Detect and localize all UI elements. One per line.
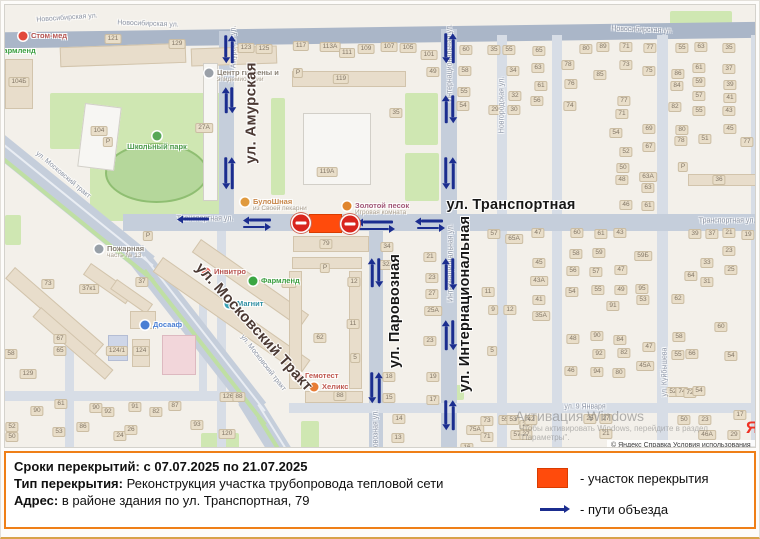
legend-detour-label: - пути объезда xyxy=(580,502,668,517)
house-number: 13 xyxy=(392,434,403,442)
house-number: 46 xyxy=(620,201,631,209)
detour-arrow xyxy=(445,33,448,57)
street xyxy=(552,35,562,448)
house-number: 123 xyxy=(239,44,254,52)
house-number: 47 xyxy=(532,229,543,237)
detour-arrow xyxy=(231,87,234,107)
house-number: 34 xyxy=(381,243,392,251)
poi-icon xyxy=(153,132,162,141)
poi-sublabel: Игровая комната xyxy=(355,209,406,216)
house-number: 67 xyxy=(643,143,654,151)
house-number: 82 xyxy=(150,408,161,416)
house-number: 84 xyxy=(614,336,625,344)
street-label: Новгородская ул. xyxy=(499,77,506,133)
house-number: Р xyxy=(104,138,112,146)
detour-arrow xyxy=(452,39,455,63)
poi-icon xyxy=(95,245,104,254)
detour-arrow xyxy=(225,35,228,57)
house-number: 56 xyxy=(567,267,578,275)
green-area xyxy=(301,421,319,448)
house-number: 86 xyxy=(672,70,683,78)
detour-arrow xyxy=(371,372,374,397)
street-label: ул. Транспортная xyxy=(446,197,575,213)
poi-label: Фармленд xyxy=(4,46,36,55)
house-number: 61 xyxy=(693,64,704,72)
poi-sublabel: из Своей пекарни xyxy=(253,205,307,212)
green-area xyxy=(5,215,21,245)
house-number: 55 xyxy=(676,44,687,52)
house-number: 23 xyxy=(723,247,734,255)
house-number: Р xyxy=(294,69,302,77)
house-number: 57 xyxy=(488,230,499,238)
house-number: 24 xyxy=(114,432,125,440)
house-number: 43 xyxy=(614,229,625,237)
detour-arrow xyxy=(445,400,448,424)
detour-arrow xyxy=(445,101,448,123)
house-number: 111 xyxy=(340,49,354,57)
house-number: 43 xyxy=(723,107,734,115)
map-canvas[interactable]: 121129104Б123125117113А11110910710510149… xyxy=(4,4,756,448)
house-number: 59Б xyxy=(635,252,651,260)
house-number: 63 xyxy=(532,64,543,72)
detour-arrow xyxy=(452,163,455,189)
house-number: Р xyxy=(321,264,329,272)
house-number: 37 xyxy=(136,278,147,286)
house-number: 124 xyxy=(134,347,149,355)
house-number: 120 xyxy=(220,430,235,438)
house-number: 11 xyxy=(483,288,494,296)
house-number: 48 xyxy=(616,176,627,184)
windows-activation-watermark: Активация Windows xyxy=(515,408,644,424)
green-area xyxy=(105,143,208,203)
house-number: 45 xyxy=(533,259,544,267)
detour-arrow xyxy=(421,220,443,223)
map-attribution[interactable]: © Яндекс Справка Условия использования xyxy=(607,440,756,448)
house-number: 39 xyxy=(724,81,735,89)
street-label: Новосибирская ул. xyxy=(117,19,179,28)
house-number: 41 xyxy=(724,94,735,102)
house-number: 59 xyxy=(593,249,604,257)
detour-arrow xyxy=(452,406,455,430)
house-number: 19 xyxy=(742,231,753,239)
house-number: 48 xyxy=(567,335,578,343)
house-number: 21 xyxy=(424,253,435,261)
house-number: 12 xyxy=(348,278,359,286)
house-number: 77 xyxy=(618,97,629,105)
street-label: Новосибирская ул. xyxy=(36,12,98,23)
house-number: 55 xyxy=(458,88,469,96)
house-number: 67 xyxy=(54,335,65,343)
house-number: Р xyxy=(679,163,687,171)
house-number: 52 xyxy=(620,148,631,156)
house-number: 104Б xyxy=(9,78,28,86)
house-number: 35А xyxy=(533,312,549,320)
house-number: 55 xyxy=(503,46,514,54)
detour-arrow xyxy=(183,218,209,221)
house-number: 45 xyxy=(724,125,735,133)
house-number: 35 xyxy=(723,44,734,52)
house-number: 54 xyxy=(610,129,621,137)
house-number: 105 xyxy=(401,44,416,52)
house-number: 62 xyxy=(672,295,683,303)
poi-label: Стом-мед xyxy=(31,31,67,40)
house-number: 21 xyxy=(723,229,734,237)
street xyxy=(751,35,756,448)
house-number: 58 xyxy=(459,67,470,75)
house-number: 71 xyxy=(481,433,492,441)
house-number: 95 xyxy=(636,285,647,293)
legend-detour-arrow-icon xyxy=(540,508,564,511)
house-number: 49 xyxy=(615,286,626,294)
house-number: 60 xyxy=(460,46,471,54)
house-number: 43А xyxy=(531,277,547,285)
house-number: 107 xyxy=(382,43,397,51)
house-number: 71 xyxy=(620,43,631,51)
house-number: 78 xyxy=(562,61,573,69)
house-number: 23 xyxy=(426,274,437,282)
closure-dates-label: Сроки перекрытий: xyxy=(14,459,140,474)
house-number: 101 xyxy=(422,51,437,59)
house-number: 58 xyxy=(673,333,684,341)
house-number: 18 xyxy=(383,373,394,381)
house-number: 90 xyxy=(591,332,602,340)
building xyxy=(162,335,196,375)
detour-arrow xyxy=(452,258,455,284)
house-number: 46 xyxy=(565,367,576,375)
house-number: 121 xyxy=(106,35,121,43)
house-number: 82 xyxy=(669,103,680,111)
detour-arrow xyxy=(445,157,448,183)
house-number: 78 xyxy=(675,137,686,145)
house-number: 85 xyxy=(594,71,605,79)
street-label: Паровозная ул. xyxy=(373,410,380,448)
house-number: 27А xyxy=(196,124,212,132)
detour-arrow xyxy=(231,41,234,63)
house-number: 54 xyxy=(693,387,704,395)
house-number: 54 xyxy=(725,352,736,360)
house-number: 60 xyxy=(715,323,726,331)
house-number: 74 xyxy=(564,102,575,110)
house-number: 60 xyxy=(571,229,582,237)
closure-type-line: Тип перекрытия: Реконструкция участка тр… xyxy=(14,475,443,492)
house-number: 54 xyxy=(566,288,577,296)
house-number: 57 xyxy=(693,92,704,100)
house-number: 93 xyxy=(191,421,202,429)
house-number: 91 xyxy=(129,403,140,411)
house-number: 55 xyxy=(592,286,603,294)
house-number: 65А xyxy=(506,235,522,243)
legend-closure-swatch xyxy=(537,468,568,488)
house-number: 17 xyxy=(427,396,438,404)
poi-label: Фармленд xyxy=(261,276,300,285)
street-label: ул. Куйбышева xyxy=(662,348,669,397)
house-number: Р xyxy=(144,232,152,240)
house-number: 51 xyxy=(699,135,710,143)
house-number: 17 xyxy=(734,411,745,419)
house-number: 53 xyxy=(53,428,64,436)
house-number: 63 xyxy=(695,43,706,51)
house-number: 58 xyxy=(5,350,16,358)
info-panel: Сроки перекрытий: с 07.07.2025 по 21.07.… xyxy=(4,451,756,529)
house-number: 50 xyxy=(617,164,628,172)
detour-arrow xyxy=(225,93,228,113)
street-label: ул. Амурская xyxy=(243,62,260,164)
house-number: 79 xyxy=(320,240,331,248)
house-number: 117 xyxy=(294,42,308,50)
house-number: 75 xyxy=(643,67,654,75)
house-number: 125 xyxy=(257,45,272,53)
closure-address-line: Адрес: в районе здания по ул. Транспортн… xyxy=(14,492,443,509)
poi-label: Хеликс xyxy=(322,382,348,391)
building xyxy=(203,63,218,201)
house-number: 66 xyxy=(686,350,697,358)
detour-arrow xyxy=(417,227,439,230)
poi-label: Досааф xyxy=(153,320,182,329)
house-number: 73 xyxy=(481,417,492,425)
house-number: 56 xyxy=(531,97,542,105)
house-number: 49 xyxy=(427,68,438,76)
house-number: 65 xyxy=(54,347,65,355)
green-area xyxy=(271,98,285,195)
house-number: 33 xyxy=(701,259,712,267)
house-number: 39 xyxy=(689,230,700,238)
detour-arrow xyxy=(231,163,234,189)
street-label: ул. Интернациональная xyxy=(457,216,473,392)
closure-address-label: Адрес: xyxy=(14,493,58,508)
house-number: 77 xyxy=(741,138,752,146)
detour-arrow xyxy=(363,221,393,224)
no-entry-sign xyxy=(293,215,310,232)
house-number: 119 xyxy=(334,75,348,83)
green-area xyxy=(405,93,438,145)
house-number: 90 xyxy=(90,404,101,412)
building xyxy=(60,43,187,67)
detour-arrow xyxy=(445,264,448,290)
house-number: 26 xyxy=(125,426,136,434)
closure-type-value: Реконструкция участка трубопровода тепло… xyxy=(127,476,444,491)
house-number: 52 xyxy=(6,423,17,431)
house-number: 59 xyxy=(693,78,704,86)
house-number: 80 xyxy=(676,126,687,134)
house-number: 32 xyxy=(509,92,520,100)
green-area xyxy=(50,93,222,149)
house-number: 104 xyxy=(92,127,107,135)
detour-arrow xyxy=(378,378,381,403)
detour-arrow xyxy=(359,228,389,231)
house-number: 119А xyxy=(318,168,337,176)
house-number: 76 xyxy=(565,80,576,88)
house-number: 113А xyxy=(321,43,340,51)
house-number: 36 xyxy=(713,176,724,184)
no-entry-sign xyxy=(342,216,359,233)
detour-arrow xyxy=(243,226,265,229)
building xyxy=(303,113,371,185)
house-number: 87 xyxy=(169,402,180,410)
yandex-logo: Я xyxy=(746,418,756,438)
house-number: 94 xyxy=(591,368,602,376)
house-number: 58 xyxy=(570,250,581,258)
house-number: 50 xyxy=(678,416,689,424)
house-number: 77 xyxy=(644,44,655,52)
poi-icon xyxy=(249,277,258,286)
house-number: 54 xyxy=(457,102,468,110)
legend-closure-label: - участок перекрытия xyxy=(580,471,709,486)
house-number: 16 xyxy=(461,444,472,448)
house-number: 23 xyxy=(699,416,710,424)
street-label: ул. Паровозная xyxy=(387,254,403,368)
house-number: 92 xyxy=(102,408,113,416)
house-number: 41 xyxy=(533,296,544,304)
street-label: Транспортная ул. xyxy=(699,218,756,225)
house-number: 15 xyxy=(383,394,394,402)
house-number: 92 xyxy=(593,350,604,358)
house-number: 61 xyxy=(535,82,546,90)
house-number: 73 xyxy=(620,61,631,69)
house-number: 19 xyxy=(427,373,438,381)
building xyxy=(292,71,406,87)
house-number: 25А xyxy=(425,307,441,315)
closure-dates-line: Сроки перекрытий: с 07.07.2025 по 21.07.… xyxy=(14,458,443,475)
house-number: 129 xyxy=(170,40,185,48)
house-number: 86 xyxy=(77,423,88,431)
house-number: 88 xyxy=(233,393,244,401)
house-number: 37 xyxy=(723,65,734,73)
house-number: 35 xyxy=(390,109,401,117)
poi-icon xyxy=(343,202,352,211)
house-number: 65 xyxy=(533,47,544,55)
detour-arrow xyxy=(452,320,455,344)
closure-type-label: Тип перекрытия: xyxy=(14,476,123,491)
detour-arrow xyxy=(249,219,271,222)
house-number: 82 xyxy=(618,349,629,357)
house-number: 64 xyxy=(685,272,696,280)
house-number: 14 xyxy=(393,415,404,423)
house-number: 37 xyxy=(706,230,717,238)
house-number: 129 xyxy=(21,370,36,378)
house-number: 109 xyxy=(359,45,374,53)
building xyxy=(77,103,122,171)
house-number: 63А xyxy=(640,173,656,181)
detour-arrow xyxy=(445,326,448,350)
house-number: 61 xyxy=(642,202,653,210)
house-number: 50 xyxy=(6,433,17,441)
closure-details: Сроки перекрытий: с 07.07.2025 по 21.07.… xyxy=(14,458,443,509)
house-number: 9 xyxy=(489,306,497,314)
house-number: 91 xyxy=(607,302,618,310)
house-number: 23 xyxy=(424,337,435,345)
house-number: 47 xyxy=(615,266,626,274)
closure-dates-value: с 07.07.2025 по 21.07.2025 xyxy=(144,459,308,474)
poi-icon xyxy=(205,69,214,78)
detour-arrow xyxy=(371,264,374,287)
detour-arrow xyxy=(378,258,381,281)
poi-icon xyxy=(141,321,150,330)
closure-zone xyxy=(309,214,342,233)
house-number: 88 xyxy=(334,392,345,400)
house-number: 47 xyxy=(643,343,654,351)
green-area xyxy=(405,153,439,201)
house-number: 5 xyxy=(351,354,359,362)
house-number: 90 xyxy=(31,407,42,415)
house-number: 37к1 xyxy=(80,285,98,293)
poi-sublabel: часть № 13 xyxy=(107,252,141,259)
house-number: 124/1 xyxy=(107,347,127,355)
house-number: 80 xyxy=(580,45,591,53)
detour-arrow xyxy=(225,157,228,183)
house-number: 71 xyxy=(616,110,627,118)
closure-address-value: в районе здания по ул. Транспортная, 79 xyxy=(62,493,310,508)
house-number: 12 xyxy=(504,306,515,314)
detour-arrow xyxy=(452,95,455,117)
house-number: 69 xyxy=(643,125,654,133)
house-number: 55 xyxy=(672,351,683,359)
building xyxy=(349,271,362,389)
house-number: 89 xyxy=(597,43,608,51)
poi-icon xyxy=(19,32,28,41)
house-number: 5 xyxy=(488,347,496,355)
road-closure-notice: 121129104Б123125117113А11110910710510149… xyxy=(0,0,760,539)
house-number: 25 xyxy=(725,266,736,274)
house-number: 63 xyxy=(642,184,653,192)
poi-icon xyxy=(241,198,250,207)
house-number: 61 xyxy=(595,230,606,238)
house-number: 31 xyxy=(701,278,712,286)
house-number: 34 xyxy=(507,67,518,75)
house-number: 62 xyxy=(314,334,325,342)
house-number: 84 xyxy=(671,82,682,90)
house-number: 53 xyxy=(637,296,648,304)
house-number: 35 xyxy=(488,46,499,54)
house-number: 30 xyxy=(508,106,519,114)
poi-label: Школьный парк xyxy=(127,142,187,151)
house-number: 45А xyxy=(637,362,653,370)
house-number: 11 xyxy=(348,320,359,328)
house-number: 73 xyxy=(42,280,53,288)
house-number: 80 xyxy=(613,369,624,377)
house-number: 55 xyxy=(693,107,704,115)
house-number: 57 xyxy=(590,268,601,276)
house-number: 27 xyxy=(426,290,437,298)
house-number: 61 xyxy=(55,400,66,408)
